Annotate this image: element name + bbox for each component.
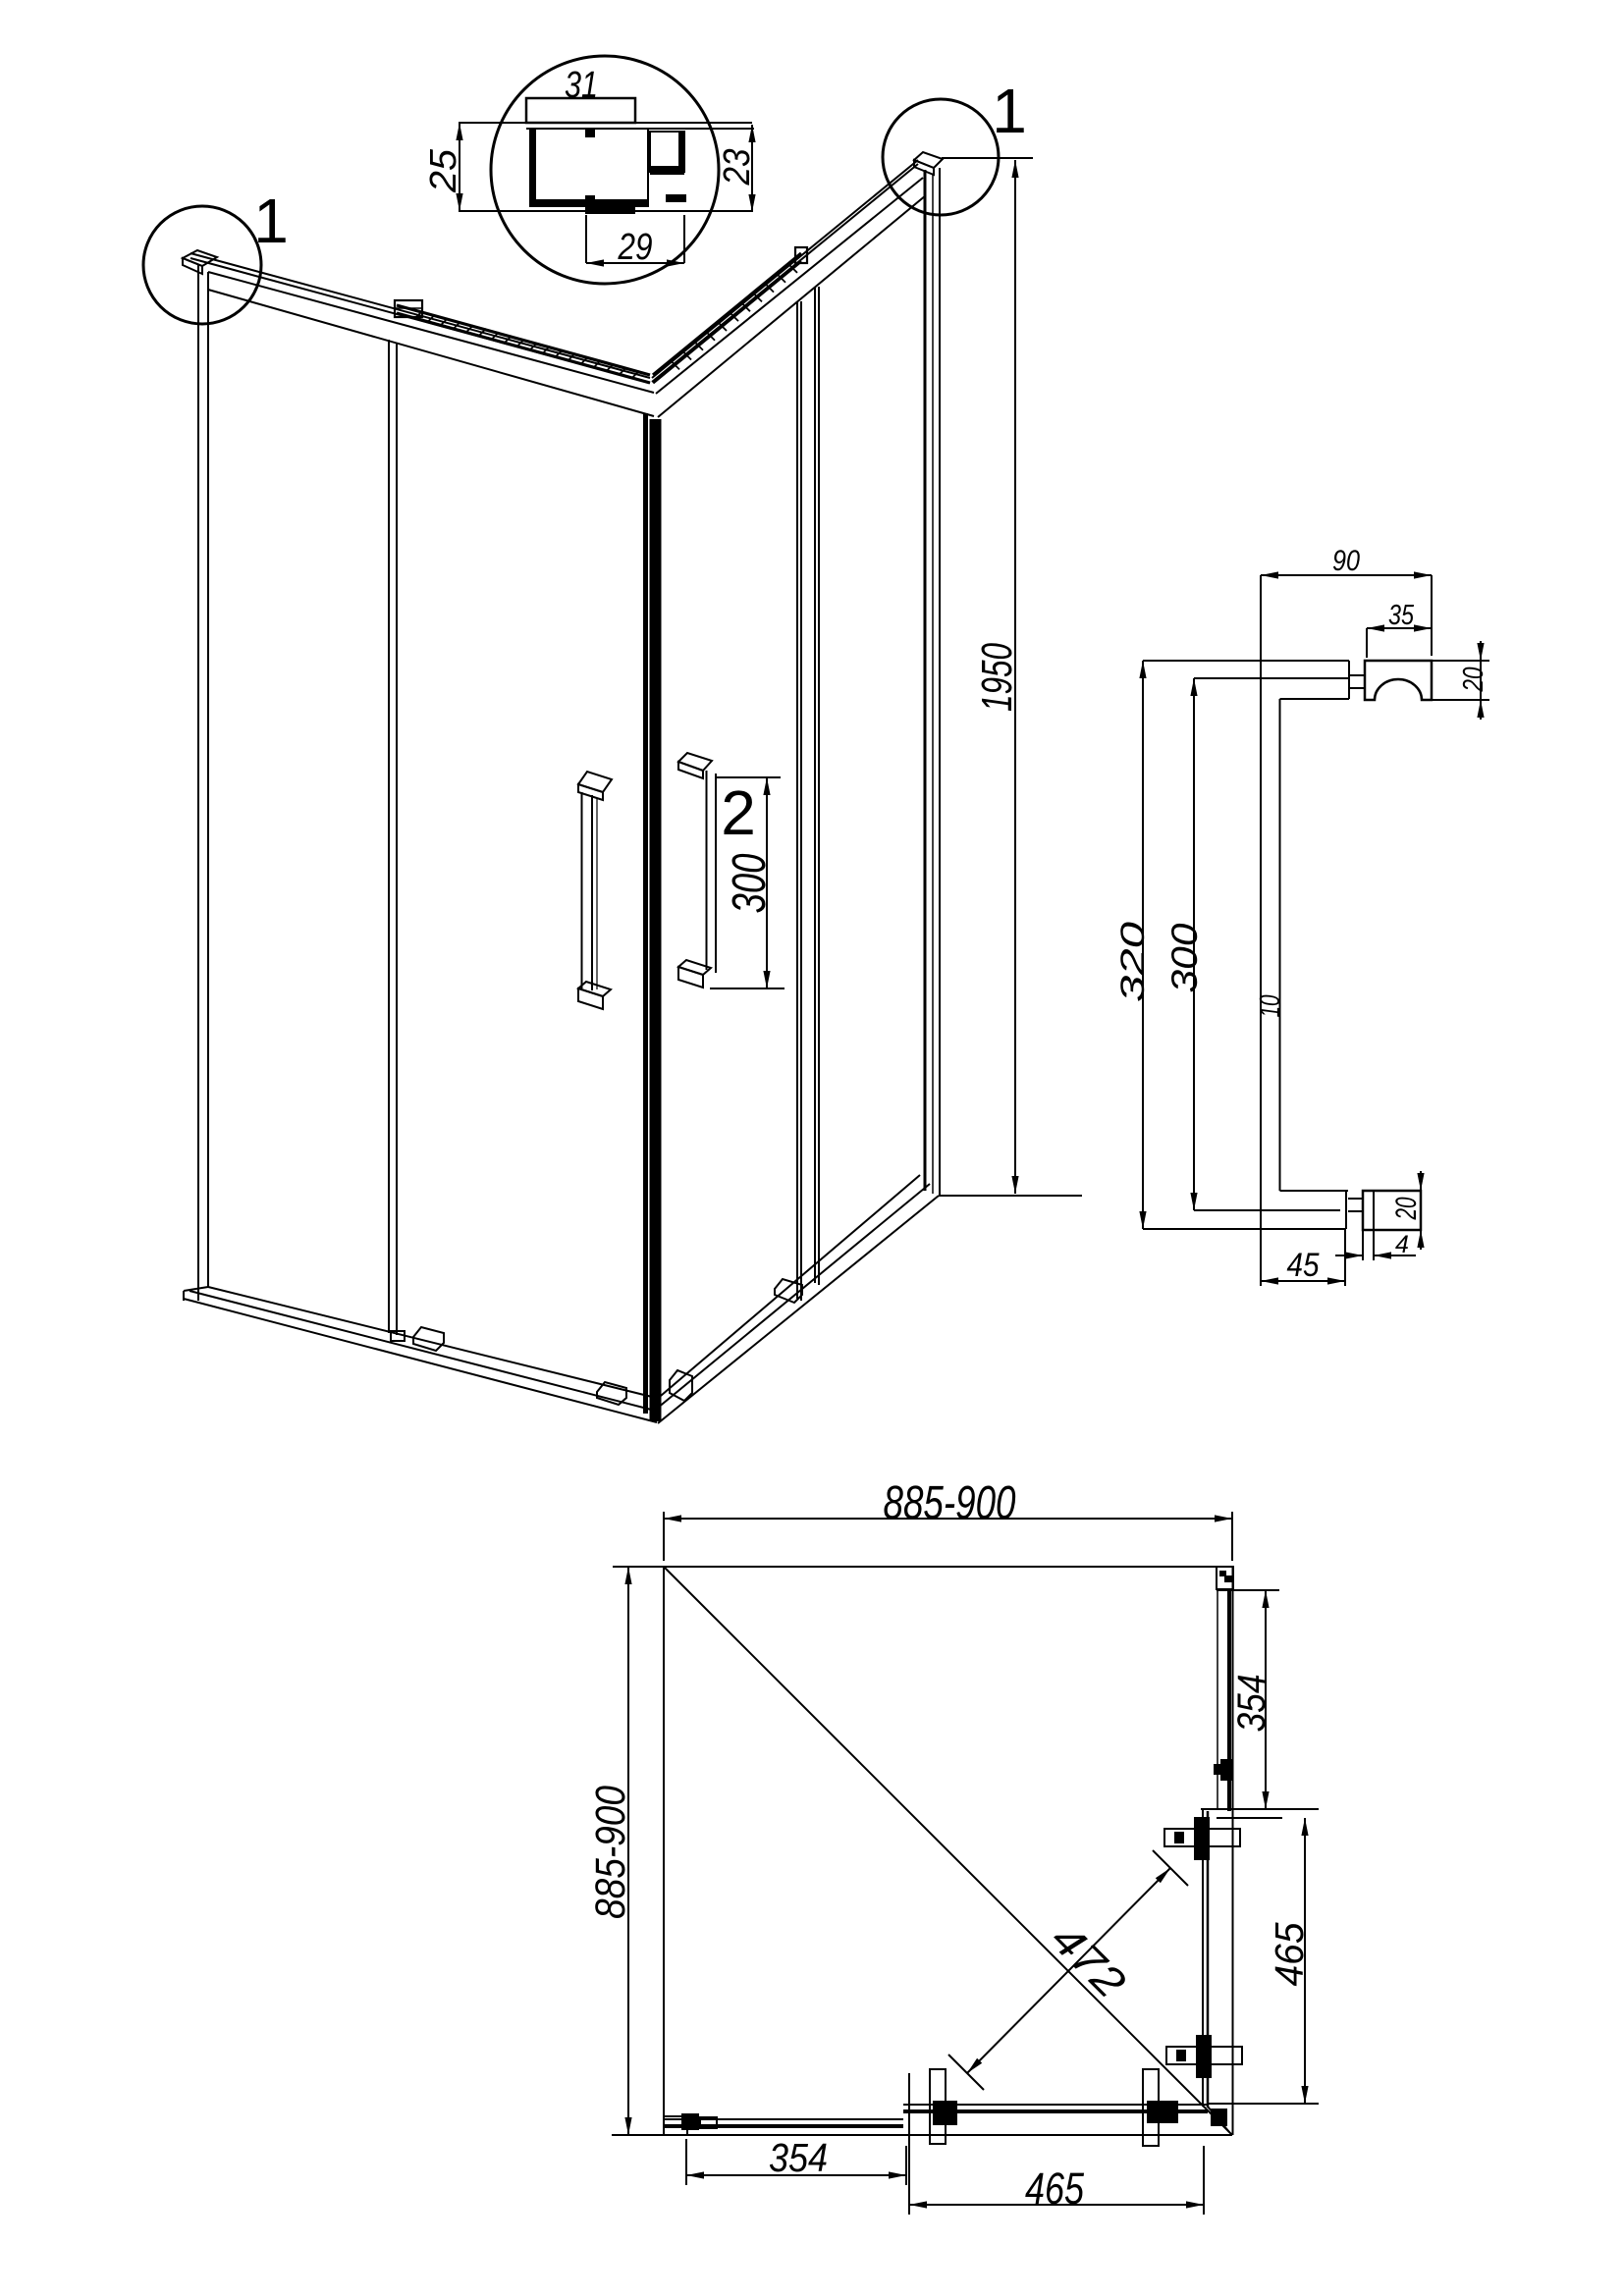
- svg-text:25: 25: [423, 148, 464, 193]
- svg-text:20: 20: [1390, 1197, 1423, 1220]
- svg-text:300: 300: [1164, 923, 1205, 992]
- svg-text:29: 29: [618, 227, 653, 268]
- svg-text:885-900: 885-900: [884, 1477, 1016, 1529]
- svg-text:4: 4: [1395, 1231, 1409, 1258]
- svg-text:20: 20: [1458, 667, 1489, 693]
- svg-text:23: 23: [717, 149, 758, 187]
- svg-text:354: 354: [1230, 1675, 1273, 1733]
- svg-text:1: 1: [992, 76, 1027, 146]
- svg-text:35: 35: [1388, 600, 1415, 631]
- svg-text:45: 45: [1287, 1247, 1320, 1284]
- svg-text:31: 31: [565, 65, 598, 106]
- svg-text:10: 10: [1255, 995, 1286, 1018]
- svg-text:90: 90: [1332, 545, 1360, 577]
- svg-text:1950: 1950: [973, 643, 1021, 712]
- svg-text:1: 1: [253, 186, 289, 256]
- svg-text:354: 354: [769, 2135, 828, 2180]
- svg-text:300: 300: [724, 853, 776, 913]
- svg-text:465: 465: [1267, 1922, 1312, 1986]
- svg-text:2: 2: [721, 777, 756, 848]
- svg-text:885-900: 885-900: [587, 1786, 634, 1919]
- svg-text:320: 320: [1114, 922, 1152, 1002]
- svg-text:465: 465: [1025, 2163, 1085, 2214]
